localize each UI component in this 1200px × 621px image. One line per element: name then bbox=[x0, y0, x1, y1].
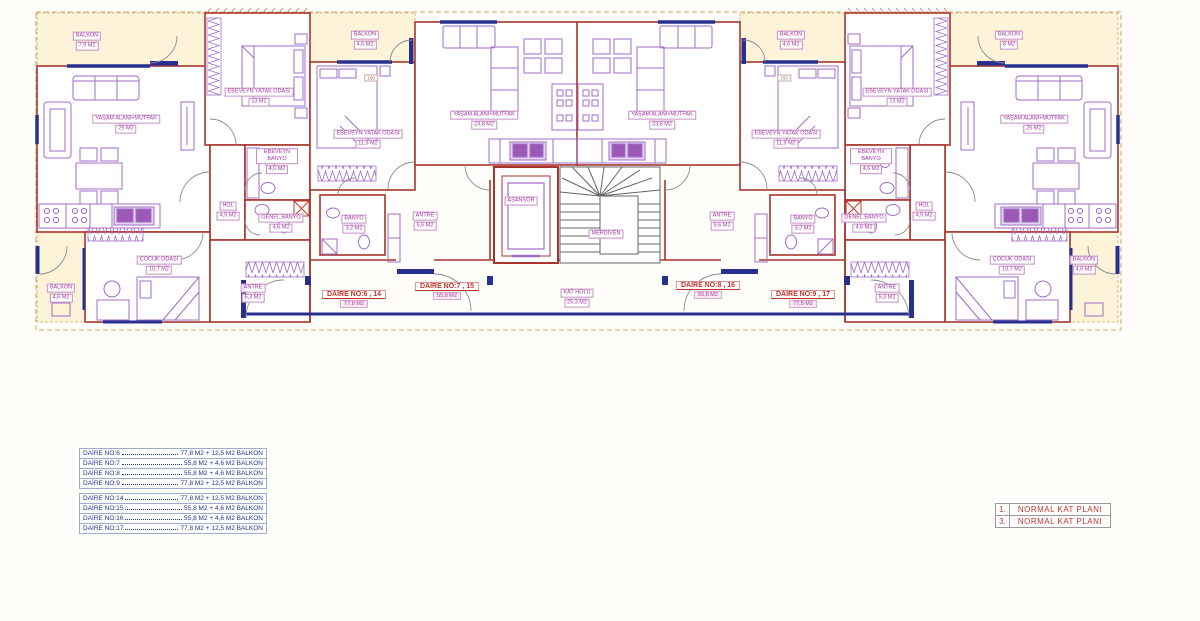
room-label-yasam-7: YAŞAM ALANI+MUTFAK23,8 M2 bbox=[450, 111, 518, 130]
staircase bbox=[560, 167, 660, 263]
dimension-label-8: 160 bbox=[777, 75, 791, 82]
room-label-balkon-6-top: BALKON7,9 M2 bbox=[73, 32, 101, 51]
room-label-antre-9: ANTRE5,3 M2 bbox=[875, 284, 900, 303]
apartment-label-daire-6-14: DAİRE NO:6 , 1477,8 M2 bbox=[322, 290, 386, 308]
apartment-label-daire-8-16: DAİRE NO:8 , 1655,8 M2 bbox=[676, 281, 740, 299]
legend-row: DAİRE NO:977,8 M2 + 12,5 M2 BALKON bbox=[79, 478, 267, 489]
room-label-ebeveyn-yatak-6: EBEVEYN YATAK ODASI13 M2 bbox=[225, 88, 294, 107]
apartment-label-daire-9-17: DAİRE NO:9 , 1777,8 M2 bbox=[771, 290, 835, 308]
room-label-balkon-7: BALKON4,6 M2 bbox=[351, 31, 379, 50]
room-label-ebeveyn-yatak-7: EBEVEYN YATAK ODASI11,9 M2 bbox=[334, 130, 403, 149]
legend-group-third-floor: DAİRE NO:1477,8 M2 + 12,5 M2 BALKON DAİR… bbox=[79, 493, 267, 534]
room-label-antre-8: ANTRE5,6 M2 bbox=[710, 212, 735, 231]
title-row: 3.NORMAL KAT PLANI bbox=[995, 515, 1111, 528]
plan-title-block: 1.NORMAL KAT PLANI 3.NORMAL KAT PLANI bbox=[995, 504, 1111, 528]
room-label-antre-7: ANTRE5,6 M2 bbox=[413, 212, 438, 231]
room-label-banyo-7: BANYO3,2 M2 bbox=[341, 215, 366, 234]
room-label-balkon-6-bottom: BALKON4,6 M2 bbox=[47, 284, 75, 303]
room-label-yasam-9: YAŞAM ALANI+MUTFAK25 M2 bbox=[1000, 115, 1068, 134]
plan-left-half bbox=[36, 8, 579, 322]
room-label-ebeveyn-banyo-6: EBEVEYN BANYO4,6 M2 bbox=[256, 148, 298, 174]
room-label-ebeveyn-yatak-8: EBEVEYN YATAK ODASI11,9 M2 bbox=[752, 130, 821, 149]
apartment-label-daire-7-15: DAİRE NO:7 , 1555,8 M2 bbox=[415, 282, 479, 300]
room-label-banyo-8: BANYO3,2 M2 bbox=[790, 215, 815, 234]
room-label-genel-banyo-9: GENEL BANYO4,6 M2 bbox=[841, 214, 886, 233]
room-label-balkon-9-top: BALKON8 M2 bbox=[995, 31, 1023, 50]
room-label-balkon-9-bottom: BALKON4,6 M2 bbox=[1070, 256, 1098, 275]
room-label-hol-9: HOL4,5 M2 bbox=[913, 202, 936, 221]
room-label-hol-6: HOL4,5 M2 bbox=[217, 202, 240, 221]
room-label-yasam-6: YAŞAM ALANI+MUTFAK25 M2 bbox=[92, 115, 160, 134]
room-label-ebeveyn-yatak-9: EBEVEYN YATAK ODASI13 M2 bbox=[863, 88, 932, 107]
room-label-ebeveyn-banyo-9: EBEVEYN BANYO4,6 M2 bbox=[850, 148, 892, 174]
apartment-area-legend: DAİRE NO:677,8 M2 + 12,5 M2 BALKON DAİRE… bbox=[79, 449, 267, 539]
room-label-cocuk-6: ÇOCUK ODASI10,7 M2 bbox=[137, 256, 182, 275]
room-label-balkon-8: BALKON4,6 M2 bbox=[777, 31, 805, 50]
legend-row: DAİRE NO:1777,8 M2 + 12,5 M2 BALKON bbox=[79, 523, 267, 534]
room-label-antre-6: ANTRE5,3 M2 bbox=[241, 284, 266, 303]
legend-group-first-floor: DAİRE NO:677,8 M2 + 12,5 M2 BALKON DAİRE… bbox=[79, 448, 267, 489]
floor-plan-page: BALKON7,9 M2 YAŞAM ALANI+MUTFAK25 M2 EBE… bbox=[0, 0, 1200, 621]
room-label-genel-banyo-6: GENEL BANYO4,6 M2 bbox=[258, 214, 303, 233]
core bbox=[494, 167, 660, 263]
room-label-cocuk-9: ÇOCUK ODASI10,7 M2 bbox=[990, 256, 1035, 275]
dimension-label-7: 160 bbox=[364, 75, 378, 82]
room-label-yasam-8: YAŞAM ALANI+MUTFAK23,8 M2 bbox=[628, 111, 696, 130]
room-label-asansor: ASANSÖR bbox=[505, 197, 538, 206]
room-label-kat-holu: KAT HOLÜ25,3 M2 bbox=[561, 289, 594, 308]
elevator-shaft bbox=[494, 167, 558, 263]
room-label-merdiven: MERDİVEN bbox=[588, 230, 623, 239]
